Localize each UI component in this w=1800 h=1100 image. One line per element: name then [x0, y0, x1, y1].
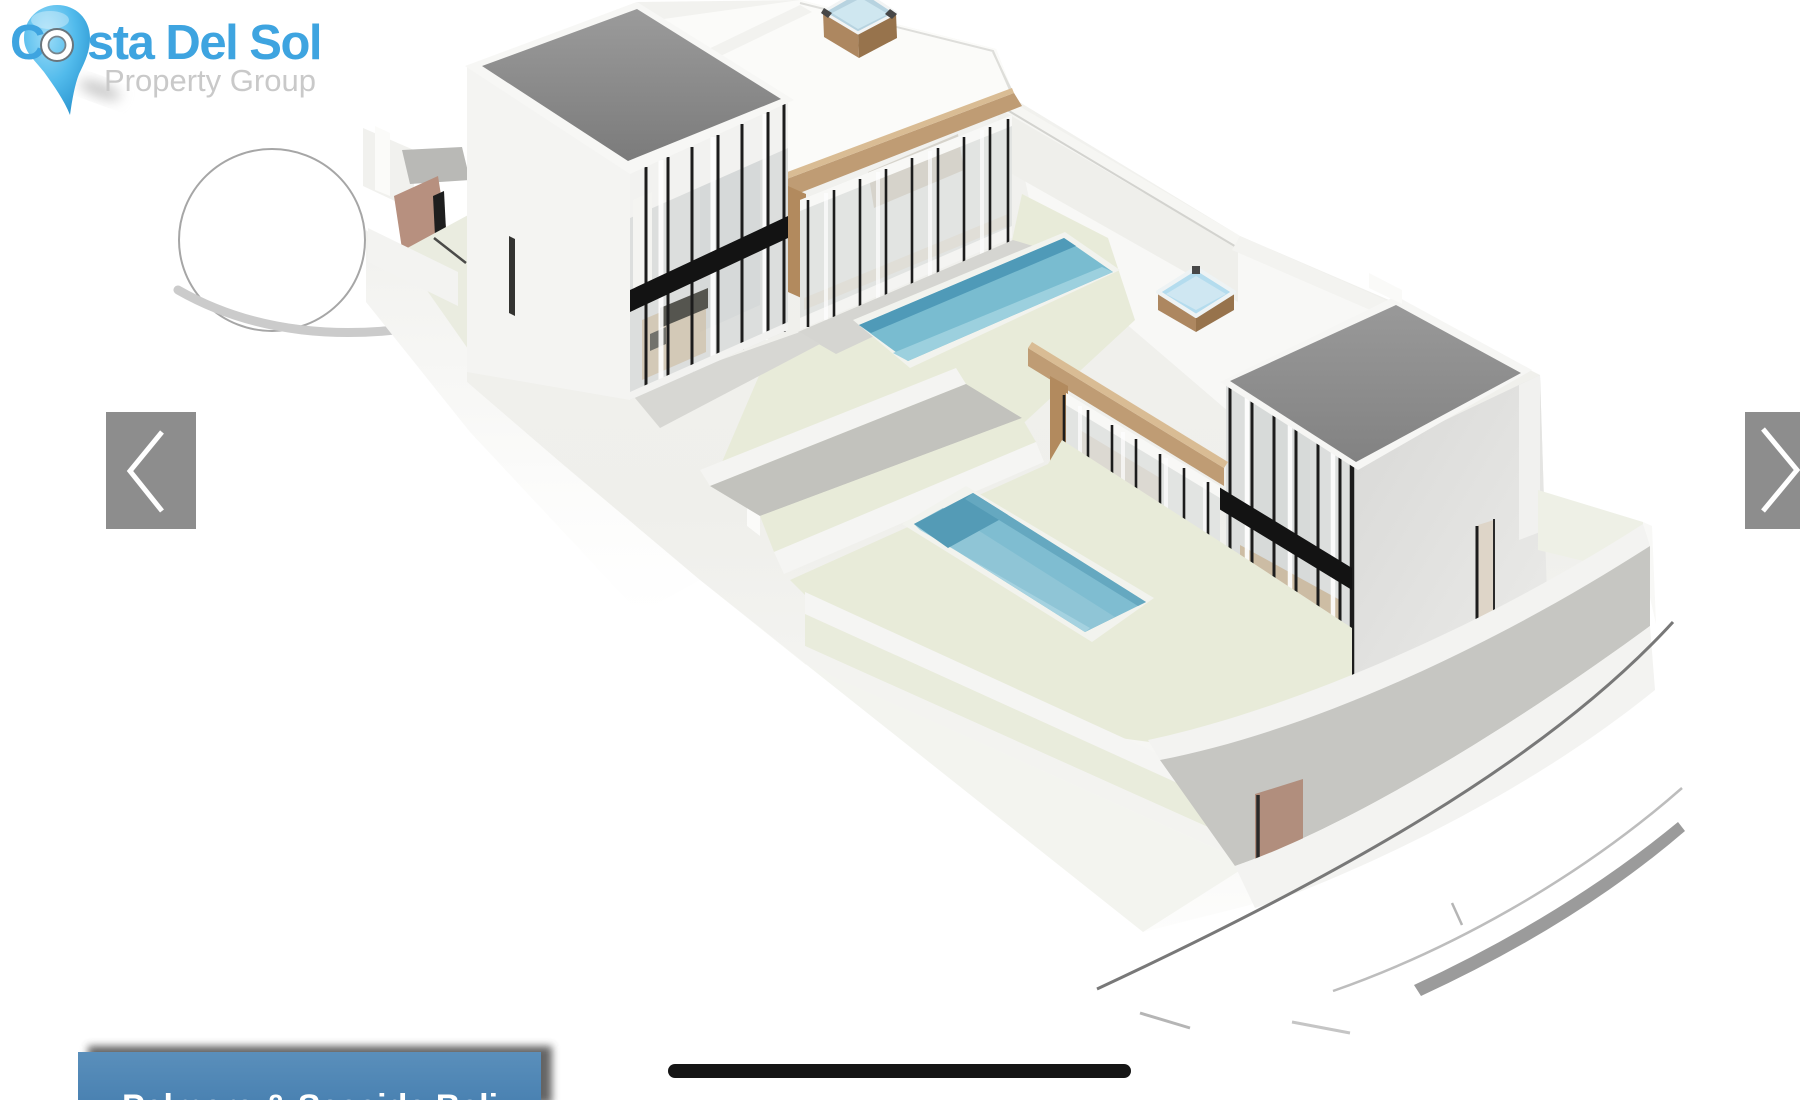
svg-text:C: C — [10, 16, 45, 70]
svg-text:Palmera & Seaside Bali: Palmera & Seaside Bali — [122, 1088, 498, 1100]
svg-text:sta Del Sol: sta Del Sol — [87, 16, 321, 70]
svg-text:Property Group: Property Group — [104, 63, 316, 98]
